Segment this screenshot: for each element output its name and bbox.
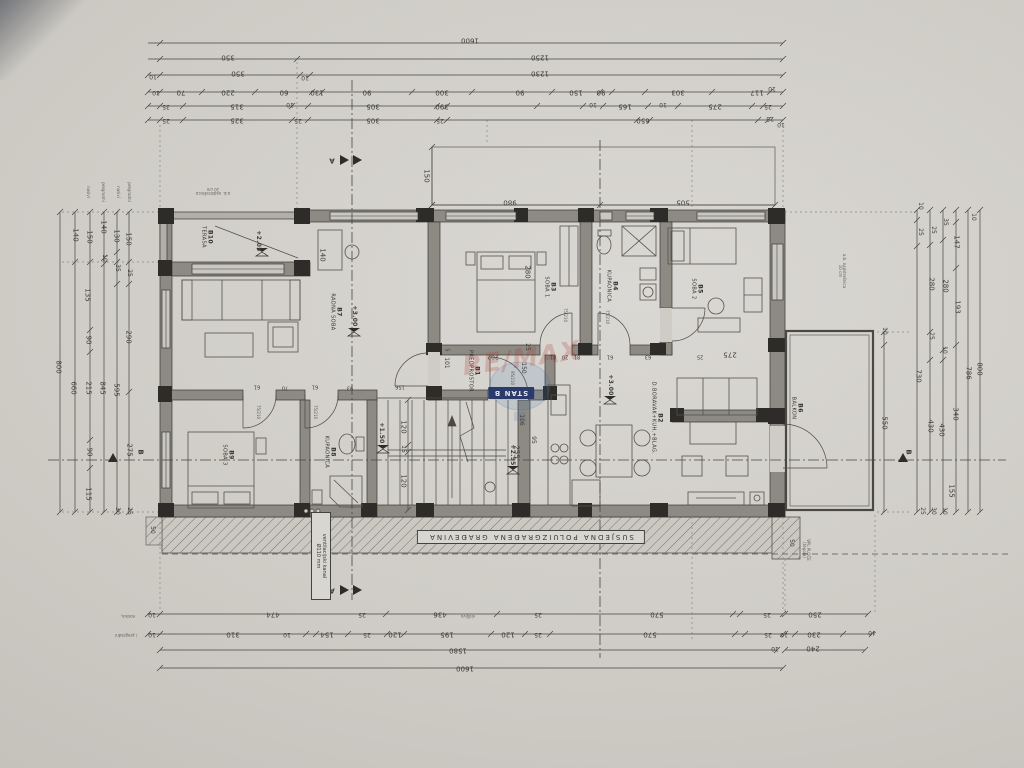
- room-label-b9: B9SOBA 3: [222, 444, 235, 465]
- dim-label: 340: [951, 407, 958, 420]
- dim-label: 730: [914, 369, 921, 382]
- dim-label: 101: [443, 357, 449, 368]
- dim-label: 150: [124, 232, 131, 245]
- dim-label: vidljivo: [461, 614, 475, 618]
- dim-label: 165: [618, 102, 631, 109]
- dim-label: 90: [84, 336, 91, 345]
- room-name: KUPAONICA: [324, 436, 330, 469]
- dim-label: 650: [636, 116, 649, 123]
- dim-label: 150: [569, 88, 582, 95]
- dim-label: 115: [84, 487, 91, 500]
- dim-label: 230: [807, 630, 820, 637]
- dim-label: 10: [589, 101, 597, 107]
- dim-label: 10: [917, 202, 923, 210]
- dim-label: 10: [659, 101, 667, 107]
- dim-label: 280: [941, 279, 948, 292]
- dim-label: 140: [71, 228, 78, 241]
- dim-label: 305: [366, 116, 379, 123]
- dim-label: 220: [221, 88, 234, 95]
- dim-label: 117: [750, 88, 763, 95]
- dim-label: 305: [366, 102, 379, 109]
- dim-label: 75/210: [563, 308, 567, 322]
- dim-label: 120: [388, 630, 401, 637]
- dim-label: 303: [671, 88, 684, 95]
- dim-label: 845: [98, 381, 105, 394]
- room-name: BALKON: [791, 397, 797, 420]
- room-label-b4: B4KUPAONICA: [606, 270, 619, 303]
- room-id: B8: [330, 436, 337, 469]
- dim-label: 595: [112, 383, 119, 396]
- dim-label: 25: [126, 507, 132, 515]
- dim-label: 660: [69, 381, 76, 394]
- room-name: D.BORAVAK+KUH.+BLAG.: [651, 382, 657, 454]
- dim-label: 10: [149, 73, 157, 79]
- level-label: +2.95: [509, 444, 515, 465]
- dim-label: 390: [435, 102, 448, 109]
- room-label-b7: B7RADNA SOBA: [330, 293, 343, 330]
- dim-label: 10: [283, 631, 291, 637]
- dim-label: 35: [114, 264, 120, 272]
- room-id: B6: [797, 397, 804, 420]
- room-id: B7: [336, 293, 343, 330]
- room-label-b10: B10TERASA: [201, 226, 214, 248]
- dim-label: 350: [231, 69, 244, 76]
- dim-label: 10: [768, 85, 776, 91]
- dim-label: 570: [650, 610, 663, 617]
- section-letter: A: [329, 156, 334, 163]
- dim-label: 120: [399, 474, 406, 487]
- room-name: TERASA: [201, 226, 207, 248]
- dim-label: 250: [808, 610, 821, 617]
- dim-label: pregradni: [101, 182, 105, 201]
- dim-label: 1250: [531, 53, 549, 60]
- dim-label: VPL PLOČE (tegola): [802, 539, 810, 561]
- dim-label: 350: [221, 53, 234, 60]
- dim-label: 10: [148, 611, 156, 617]
- dim-label: 95: [530, 436, 536, 444]
- section-letter: B: [904, 449, 911, 454]
- dim-label: 25: [764, 103, 772, 109]
- dim-label: 474: [266, 610, 279, 617]
- dim-label: 25: [358, 611, 366, 617]
- dim-label: 120: [399, 420, 406, 433]
- dim-label: 25: [126, 269, 132, 277]
- dim-label: 325: [230, 116, 243, 123]
- unit-badge: STAN B: [488, 387, 534, 399]
- staircase: [377, 398, 518, 505]
- dim-label: 61: [312, 383, 318, 388]
- dim-label: 25: [697, 353, 703, 358]
- level-label: +1.50: [378, 422, 384, 443]
- dim-label: 505: [676, 198, 689, 205]
- dim-label: 1580: [449, 646, 467, 653]
- dim-label: 154: [320, 630, 333, 637]
- dim-label: 50: [788, 539, 794, 547]
- dim-label: 290: [124, 330, 131, 343]
- dim-label: 10: [286, 101, 294, 107]
- dim-label: 280: [927, 277, 934, 290]
- dim-label: 30: [930, 507, 936, 515]
- dim-label: 193: [953, 300, 960, 313]
- dim-label: 75/210: [313, 405, 317, 419]
- dim-label: 10: [881, 327, 887, 335]
- room-name: SOBA 2: [691, 278, 697, 299]
- room-label-b3: B3SOBA 1: [544, 276, 557, 297]
- dim-label: 106: [518, 414, 524, 425]
- dim-label: 10: [152, 89, 160, 95]
- room-id: B10: [207, 226, 214, 248]
- section-letter: B: [136, 449, 143, 454]
- dim-label: 25: [919, 507, 925, 515]
- dim-label: 25: [764, 631, 772, 637]
- dim-label: 275: [723, 350, 736, 357]
- dim-label: 25: [917, 228, 923, 236]
- dim-label: 10: [148, 631, 156, 637]
- dim-label: 61: [254, 383, 260, 388]
- dim-label: 550: [880, 416, 887, 429]
- dim-label: 60: [280, 88, 289, 95]
- dim-label: 10: [970, 213, 976, 221]
- dim-label: 75/210: [605, 310, 609, 324]
- room-label-b6: B6BALKON: [791, 397, 804, 420]
- dim-label: 147: [952, 235, 959, 248]
- dim-label: 786: [964, 366, 971, 379]
- dim-label: 15: [400, 445, 406, 453]
- ventilation-duct-line2: Ø110 mm: [315, 544, 321, 569]
- dim-label: 156: [395, 383, 405, 388]
- room-name: KUPAONICA: [606, 270, 612, 303]
- canopy-outline: [432, 147, 775, 205]
- dim-label: 70: [282, 384, 288, 389]
- dim-label: 140: [318, 248, 325, 261]
- room-id: B5: [697, 278, 704, 299]
- dim-label: 25: [534, 611, 542, 617]
- dim-label: 90: [363, 88, 372, 95]
- balcony-outline: [786, 331, 873, 510]
- dim-label: 25: [162, 117, 170, 123]
- dim-label: 1230: [531, 69, 549, 76]
- dim-label: 275: [125, 443, 132, 456]
- dim-label: 10: [101, 254, 107, 262]
- dim-label: 150: [422, 169, 429, 182]
- room-name: SOBA 1: [544, 276, 550, 297]
- dim-label: 240: [806, 644, 819, 651]
- ventilation-duct-note: ventilacijski kanal Ø110 mm: [311, 512, 331, 600]
- dim-label: 10: [941, 507, 947, 515]
- dim-label: a.b. nadstrešnica 10 cm: [838, 254, 846, 288]
- dim-label: pregradni: [127, 182, 131, 201]
- dim-label: 93: [347, 384, 353, 389]
- dim-label: 155: [947, 484, 954, 497]
- floor-plan-sheet: 1600350125010350123010107022060130903009…: [0, 0, 1024, 768]
- level-label: +2.05: [255, 230, 261, 251]
- dim-label: 61: [607, 353, 613, 358]
- dim-label: 30: [114, 507, 120, 515]
- dim-label: nosivi: [116, 186, 120, 198]
- level-label: +3.00: [607, 374, 613, 395]
- dim-label: 570: [643, 630, 656, 637]
- dim-label: 10: [941, 346, 947, 354]
- dim-label: 430: [926, 419, 933, 432]
- dim-label: 63: [645, 353, 651, 358]
- dim-label: nosivi: [86, 186, 90, 198]
- dim-label: 1600: [461, 36, 479, 43]
- dim-label: 75/210: [256, 405, 260, 419]
- dim-label: 300: [435, 88, 448, 95]
- dim-label: 25: [928, 332, 934, 340]
- room-label-b5: B5SOBA 2: [691, 278, 704, 299]
- room-id: B4: [612, 270, 619, 303]
- dim-label: 430: [937, 423, 944, 436]
- dim-label: 10: [301, 74, 309, 80]
- dim-label: 90: [85, 448, 92, 457]
- dim-label: 1600: [456, 664, 474, 671]
- dim-label: 150: [85, 230, 92, 243]
- dim-label: 25: [363, 631, 371, 637]
- dim-label: 25: [766, 115, 774, 121]
- dim-label: 70: [177, 88, 186, 95]
- dim-label: 10: [777, 121, 785, 127]
- dim-label: 10: [771, 645, 779, 651]
- dim-label: 800: [975, 362, 982, 375]
- room-name: SOBA 3: [222, 444, 228, 465]
- dim-label: 25: [534, 631, 542, 637]
- room-label-b8: B8KUPAONICA: [324, 436, 337, 469]
- dim-label: 50: [149, 526, 155, 534]
- dim-label: 135: [83, 288, 90, 301]
- dim-label: i pregradni: [115, 633, 137, 637]
- dim-label: 980: [503, 198, 516, 205]
- dim-label: 215: [84, 381, 91, 394]
- dim-label: 25: [436, 117, 444, 123]
- room-name: RADNA SOBA: [330, 293, 336, 330]
- ventilation-duct-line1: ventilacijski kanal: [321, 534, 327, 579]
- dim-label: 10: [780, 631, 788, 637]
- level-label: +3.00: [351, 305, 357, 326]
- dim-label: 35: [942, 218, 948, 226]
- room-id: B9: [228, 444, 235, 465]
- dim-label: 195: [440, 630, 453, 637]
- dim-label: 25: [930, 226, 936, 234]
- dim-label: 800: [54, 360, 61, 373]
- dim-label: 25: [294, 117, 302, 123]
- dim-label: 5: [443, 348, 448, 351]
- dim-label: 35: [162, 103, 170, 109]
- dim-label: 140: [99, 220, 106, 233]
- dim-label: 40: [868, 629, 876, 635]
- dim-label: 310: [226, 630, 239, 637]
- dim-label: 315: [230, 102, 243, 109]
- dim-label: 130: [310, 88, 323, 95]
- dim-label: a.b. nadstrešnica 10 cm: [196, 187, 230, 195]
- room-id: B3: [550, 276, 557, 297]
- room-label-b2: B2D.BORAVAK+KUH.+BLAG.: [651, 382, 664, 454]
- dim-label: nosiva,: [121, 614, 135, 618]
- dim-label: 130: [112, 229, 119, 242]
- dim-label: 280: [523, 265, 530, 278]
- dim-label: 436: [433, 610, 446, 617]
- dim-label: 120: [501, 630, 514, 637]
- neighbor-building-note: SUSJEDNA POLUIZGRAĐENA GRAĐEVINA: [417, 530, 645, 544]
- dim-label: 275: [708, 102, 721, 109]
- dim-label: 25: [763, 611, 771, 617]
- dim-label: 90: [516, 88, 525, 95]
- room-id: B2: [657, 382, 664, 454]
- dim-label: 90: [597, 88, 606, 95]
